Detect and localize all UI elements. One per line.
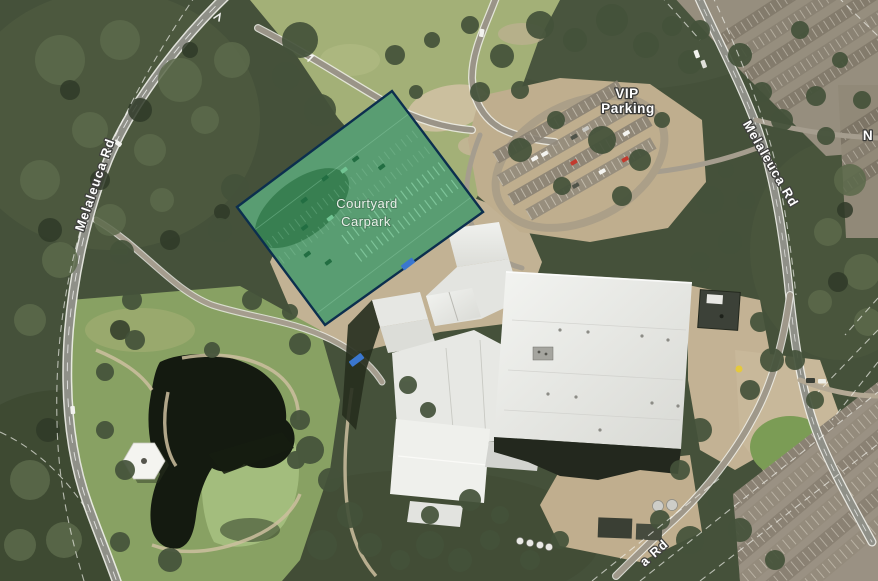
svg-text:VIP: VIP	[615, 86, 639, 101]
yellow-object	[736, 366, 743, 373]
aerial-map[interactable]: Melaleuca Rd Melaleuca Rd a Rd VIP Parki…	[0, 0, 878, 581]
svg-text:Parking: Parking	[601, 101, 655, 116]
label-edge-partial-n: N	[863, 128, 873, 143]
main-building-roof	[494, 271, 692, 449]
satellite-canvas[interactable]: Melaleuca Rd Melaleuca Rd a Rd VIP Parki…	[0, 0, 878, 581]
svg-text:Carpark: Carpark	[341, 214, 391, 229]
east-outbuilding	[698, 290, 741, 331]
svg-text:Courtyard: Courtyard	[336, 196, 398, 211]
